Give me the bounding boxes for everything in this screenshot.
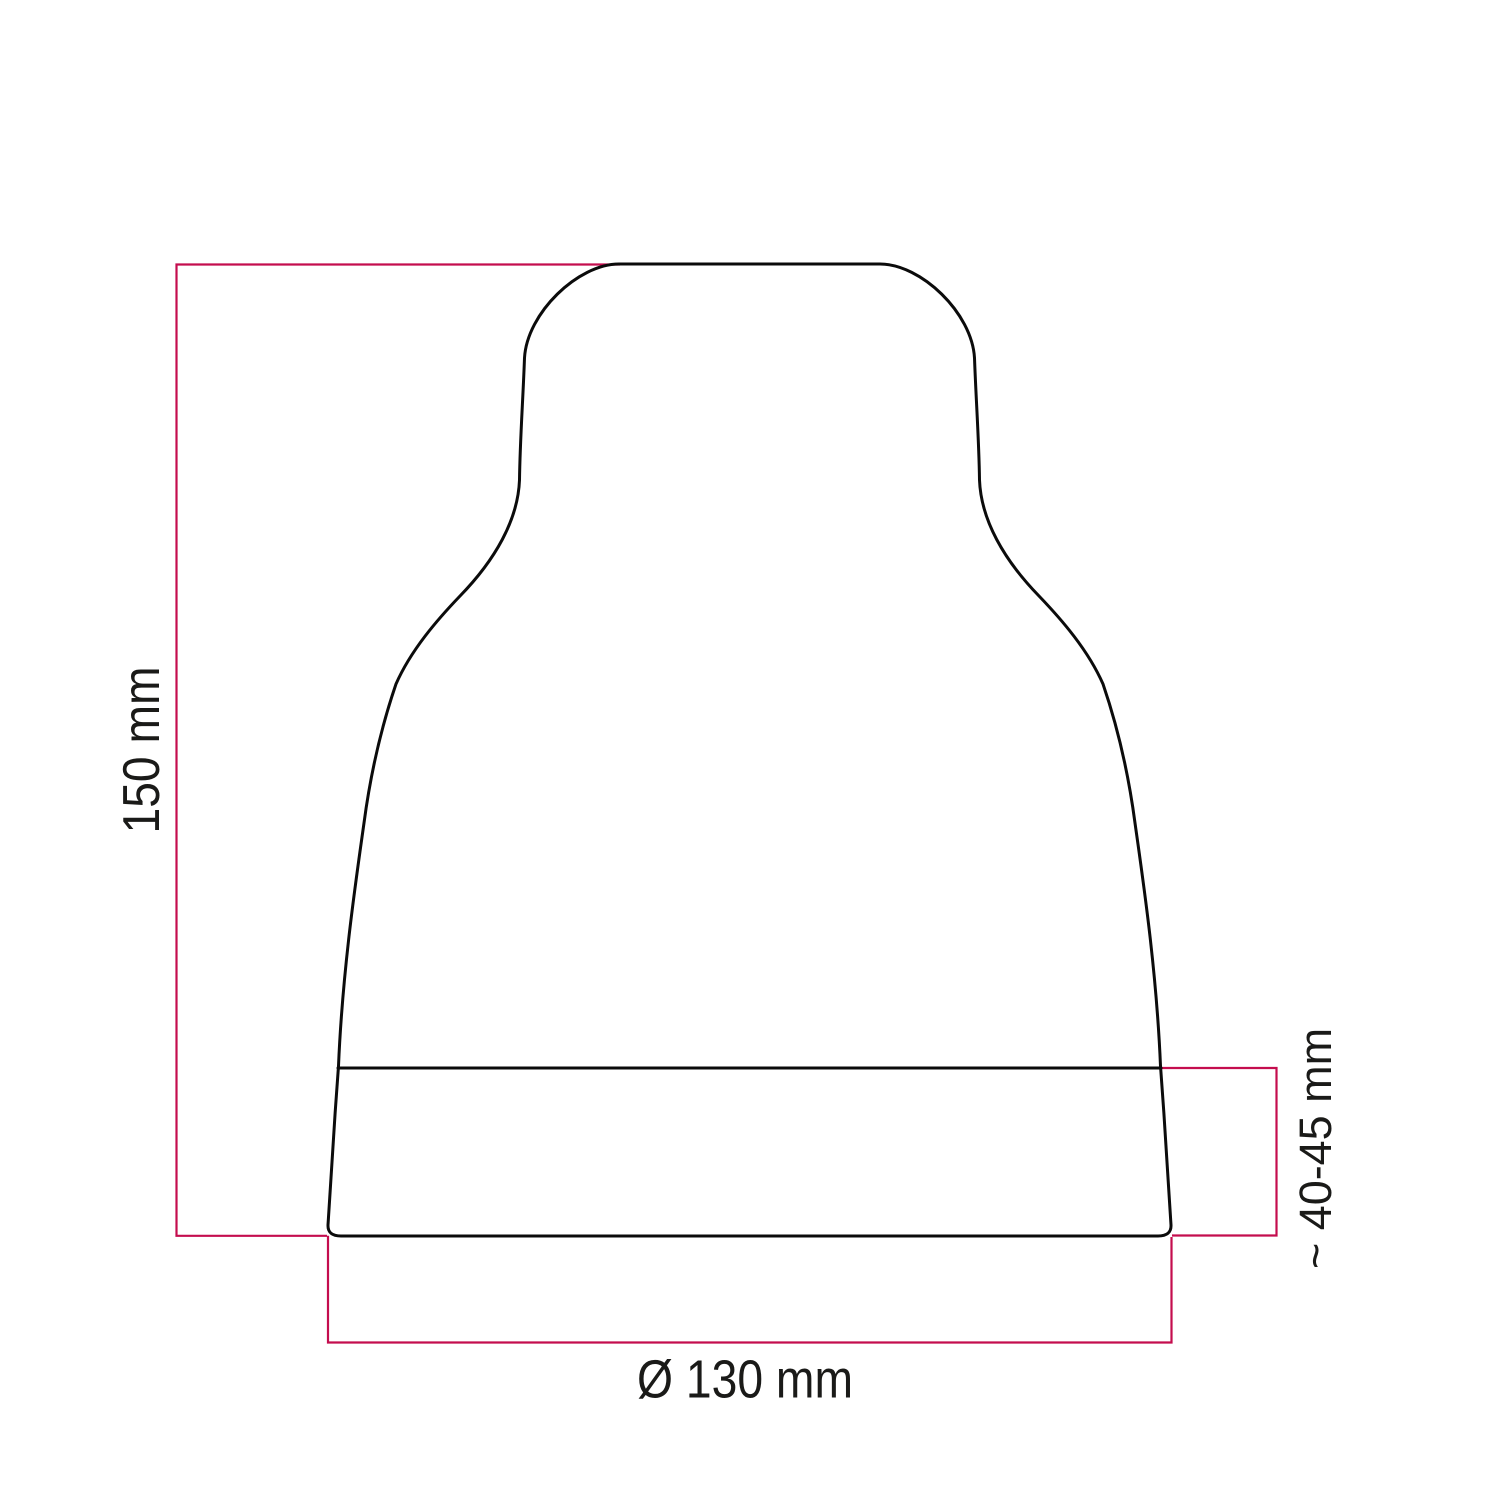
svg-text:Ø 130 mm: Ø 130 mm [637, 1351, 853, 1410]
svg-text:150 mm: 150 mm [113, 667, 171, 834]
svg-text:~ 40-45 mm: ~ 40-45 mm [1290, 1028, 1341, 1269]
